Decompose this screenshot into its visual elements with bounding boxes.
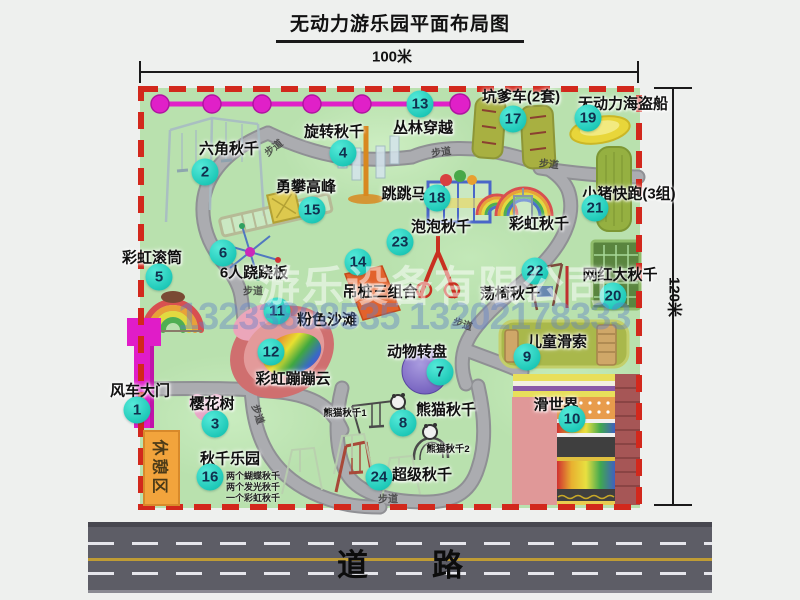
rest-area: 休憩区	[143, 430, 180, 506]
bounce-cloud-icon	[214, 288, 351, 416]
dimension-tick-right-bottom	[654, 504, 692, 506]
park-layout-map: 无动力游乐园平面布局图 100米 120米	[0, 0, 800, 600]
kids-zipline-icon	[500, 321, 628, 367]
slide-world-icon	[512, 374, 640, 505]
page-title: 无动力游乐园平面布局图	[276, 9, 524, 43]
zipline-icon	[151, 94, 470, 114]
panda-swing-icon-2	[414, 423, 448, 460]
cherry-tree-icon	[189, 394, 224, 426]
climbing-peak-icon	[216, 182, 332, 236]
dimension-line-top	[140, 71, 638, 73]
rest-area-label: 休憩区	[150, 439, 174, 496]
net-swing-icon	[592, 241, 640, 309]
hanging-pile-icon	[345, 266, 400, 320]
dimension-label-height: 120米	[665, 277, 686, 317]
panda-swing-icon-1	[352, 393, 410, 434]
dimension-tick-top-left	[139, 61, 141, 83]
animal-turntable-icon	[402, 348, 448, 394]
pirate-ship-icon	[568, 112, 632, 148]
dimension-tick-top-right	[637, 61, 639, 83]
piggy-run-icon	[597, 147, 631, 231]
bubble-swing-icon	[417, 236, 459, 298]
dimension-tick-right-top	[654, 87, 692, 89]
dimension-label-width: 100米	[372, 46, 412, 67]
